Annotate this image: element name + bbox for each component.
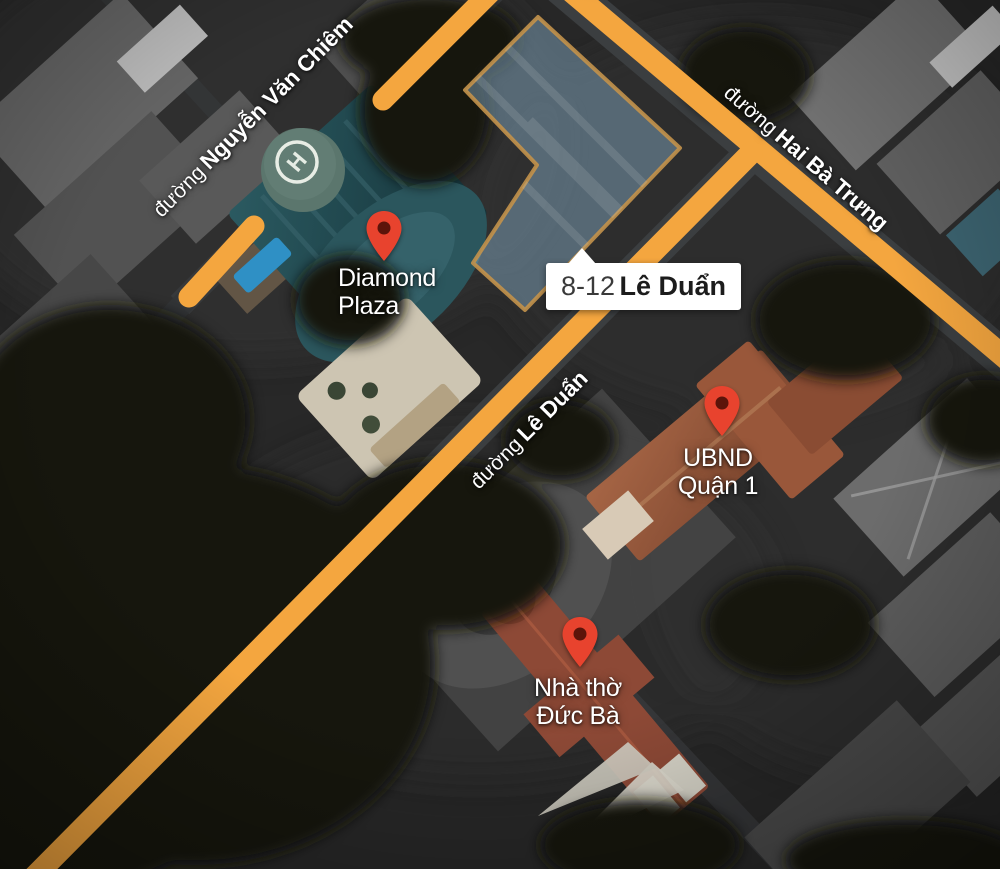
marker-diamond-plaza[interactable] bbox=[365, 210, 403, 262]
marker-ubnd-quan-1[interactable] bbox=[703, 385, 741, 437]
callout-pointer bbox=[568, 248, 596, 264]
callout-street-name: Lê Duẩn bbox=[620, 271, 727, 301]
map-pin-icon[interactable] bbox=[365, 210, 403, 262]
map-canvas bbox=[0, 0, 1000, 869]
satellite-map: H đường Nguyễn Văn Chiêm đường Hai Bà Tr… bbox=[0, 0, 1000, 869]
marker-label-diamond-plaza: Diamond Plaza bbox=[338, 264, 436, 320]
callout-address-number: 8-12 bbox=[561, 271, 615, 301]
map-pin-icon[interactable] bbox=[561, 616, 599, 668]
marker-label-line: UBND bbox=[678, 444, 758, 472]
marker-label-line: Plaza bbox=[338, 292, 436, 320]
marker-label-line: Nhà thờ bbox=[534, 674, 622, 702]
marker-label-line: Đức Bà bbox=[534, 702, 622, 730]
map-pin-icon[interactable] bbox=[703, 385, 741, 437]
parcel-address-callout[interactable]: 8-12 Lê Duẩn bbox=[546, 263, 741, 310]
marker-label-line: Diamond bbox=[338, 264, 436, 292]
marker-nha-tho-duc-ba[interactable] bbox=[561, 616, 599, 668]
marker-label-line: Quận 1 bbox=[678, 472, 758, 500]
marker-label-nha-tho-duc-ba: Nhà thờ Đức Bà bbox=[534, 674, 622, 730]
vignette bbox=[0, 0, 1000, 869]
marker-label-ubnd-quan-1: UBND Quận 1 bbox=[678, 444, 758, 500]
